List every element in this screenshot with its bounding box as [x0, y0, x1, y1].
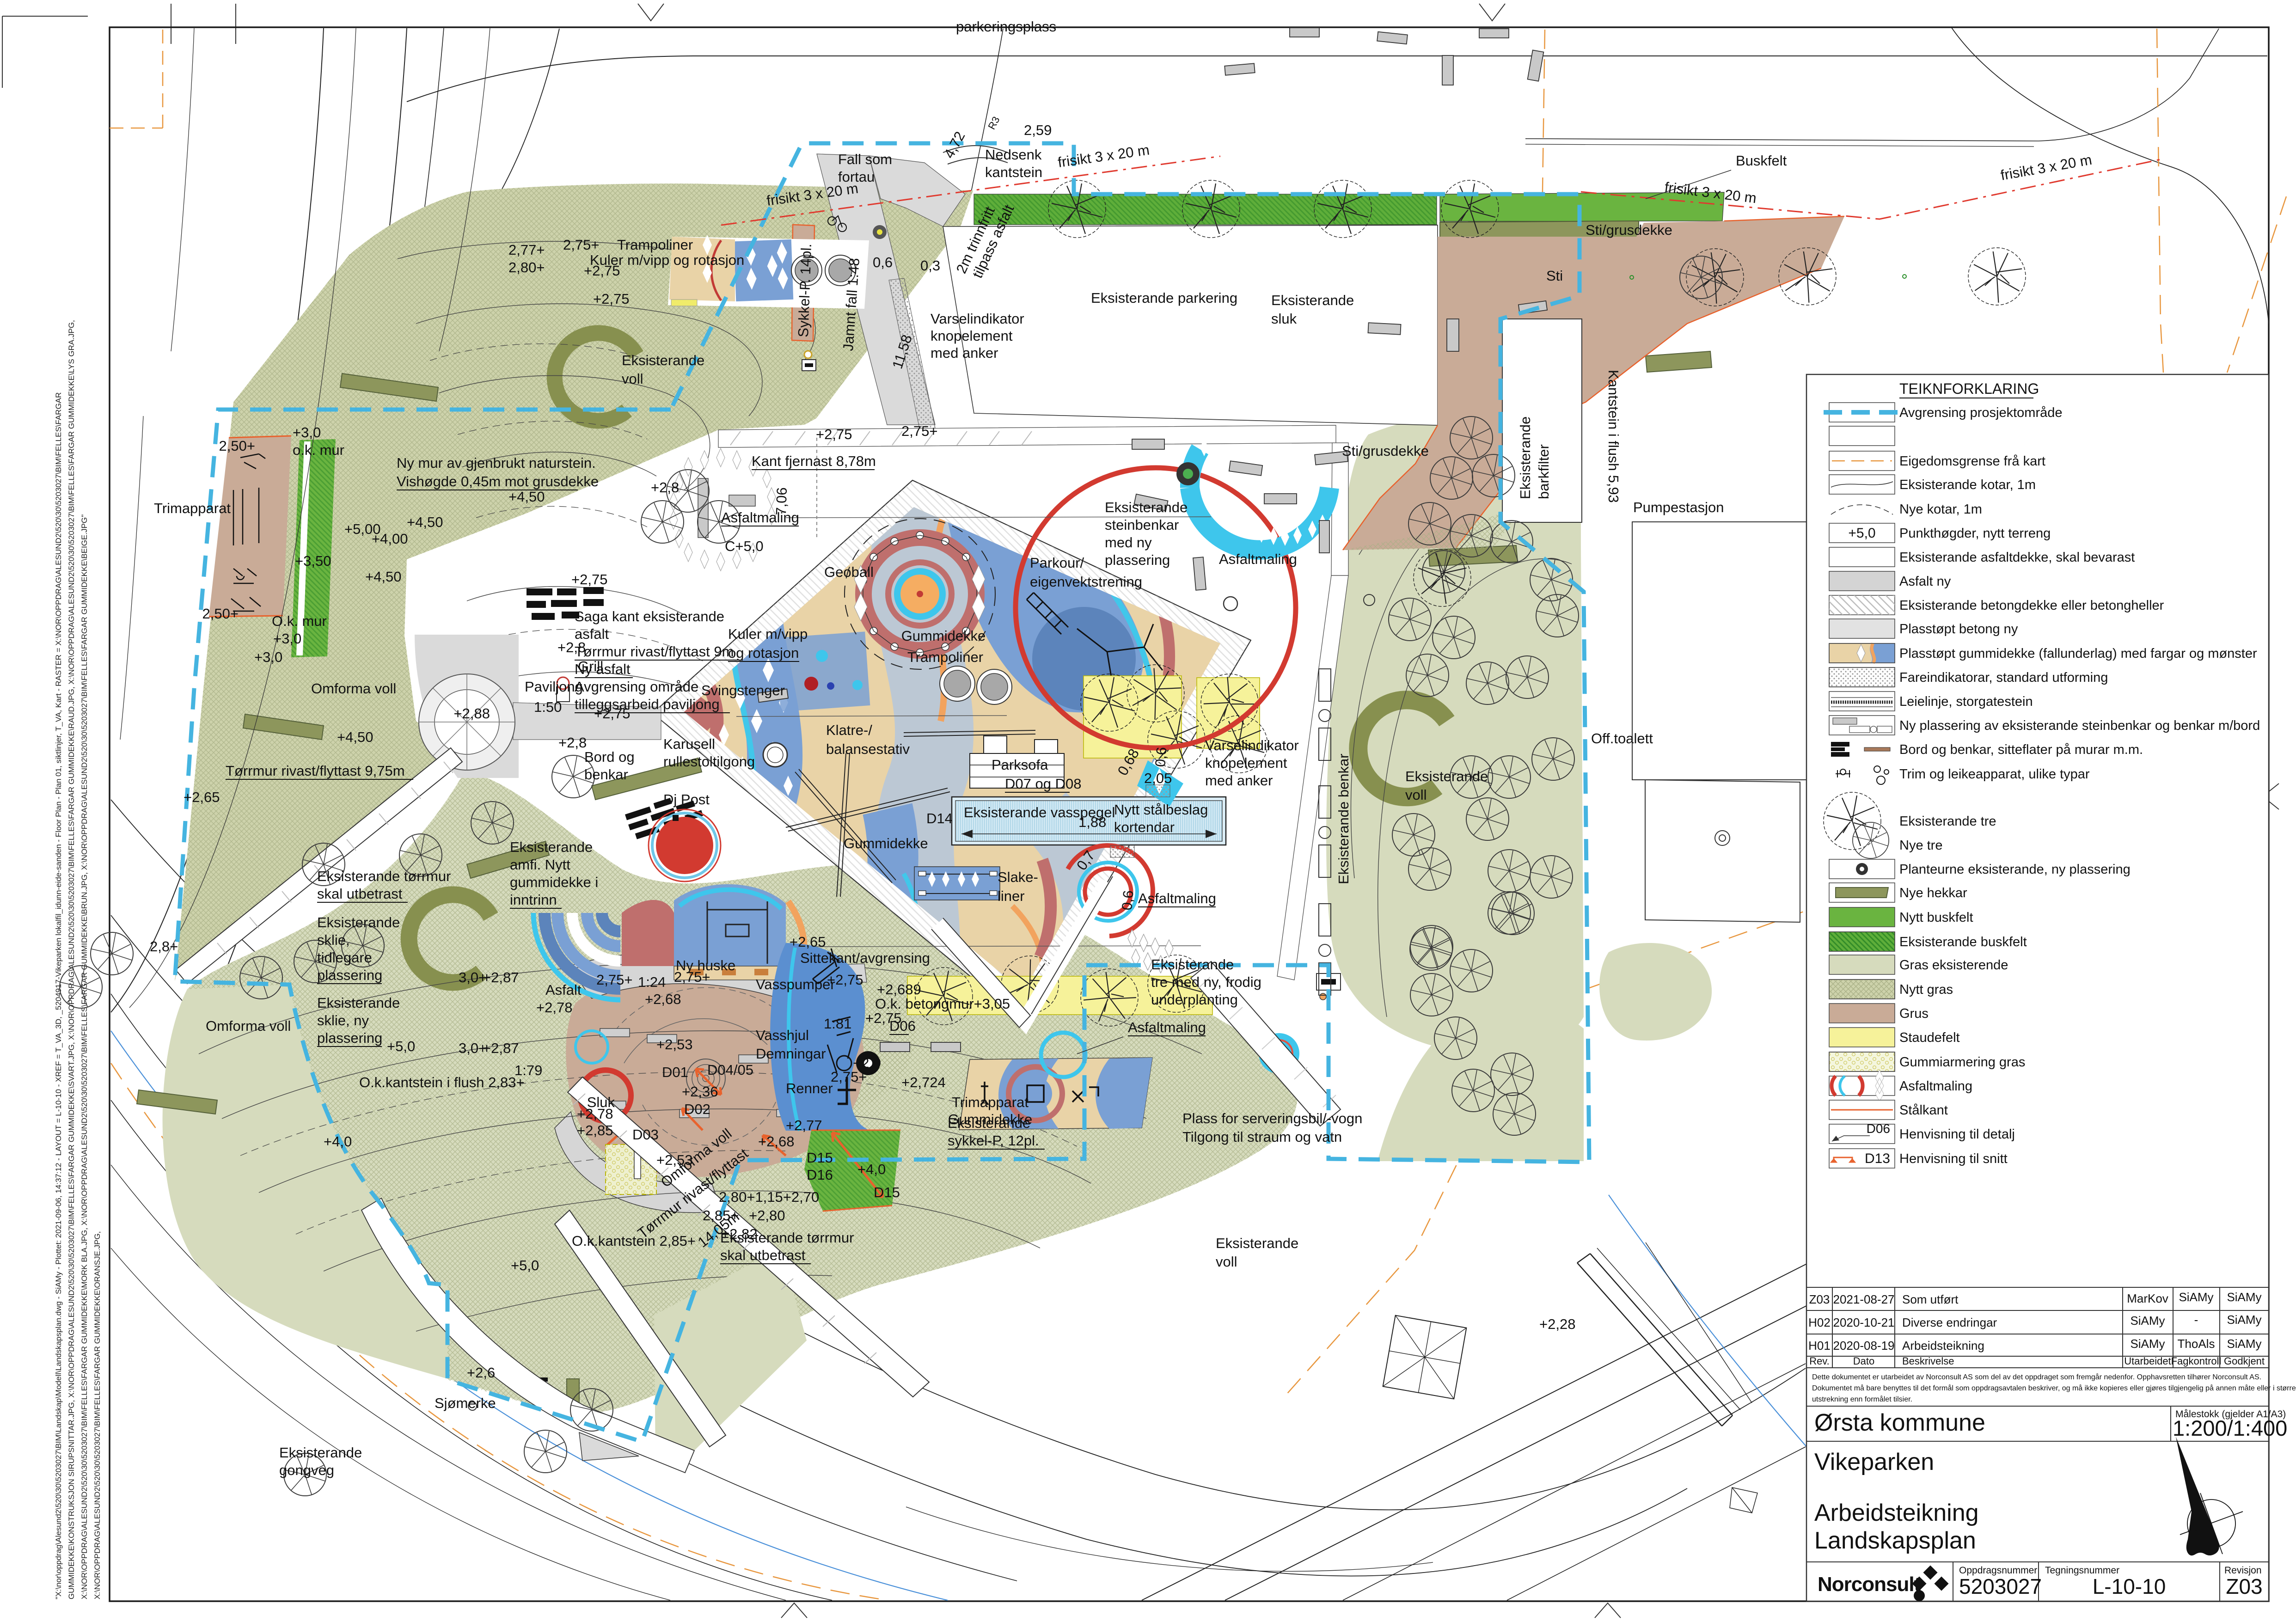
- svg-text:2,75+: 2,75+: [831, 1069, 867, 1085]
- svg-text:Plass for serveringsbil/-vogn: Plass for serveringsbil/-vogn: [1182, 1110, 1362, 1126]
- svg-text:Eksisterande benkar: Eksisterande benkar: [1335, 753, 1352, 884]
- svg-text:D14: D14: [926, 810, 953, 826]
- svg-text:Omforma voll: Omforma voll: [206, 1018, 291, 1034]
- svg-text:Asfaltmaling: Asfaltmaling: [1219, 551, 1297, 567]
- svg-text:Buskfelt: Buskfelt: [1736, 153, 1787, 169]
- svg-text:+2,724: +2,724: [901, 1074, 946, 1090]
- svg-text:+2,68: +2,68: [758, 1133, 794, 1150]
- svg-text:Demningar: Demningar: [756, 1046, 826, 1062]
- svg-text:1:79: 1:79: [514, 1062, 542, 1078]
- svg-text:SiAMy: SiAMy: [2130, 1337, 2165, 1351]
- svg-text:Slake-: Slake-: [998, 869, 1038, 885]
- svg-text:Trampoliner: Trampoliner: [617, 237, 693, 253]
- svg-text:+2,53: +2,53: [656, 1036, 692, 1053]
- svg-text:+2,75: +2,75: [584, 263, 620, 279]
- svg-text:sklie,: sklie,: [317, 932, 350, 948]
- svg-text:+5,0: +5,0: [511, 1257, 539, 1273]
- svg-text:Tilgong til straum og vatn: Tilgong til straum og vatn: [1182, 1129, 1342, 1145]
- svg-text:Eksisterande tre: Eksisterande tre: [1899, 814, 1996, 829]
- svg-text:Parkour/: Parkour/: [1030, 555, 1084, 571]
- svg-text:0,6: 0,6: [1152, 747, 1170, 768]
- svg-text:Plasstøpt betong ny: Plasstøpt betong ny: [1899, 622, 2018, 637]
- svg-text:inntrinn: inntrinn: [510, 892, 557, 908]
- svg-text:Punkthøgder, nytt terreng: Punkthøgder, nytt terreng: [1899, 526, 2051, 541]
- svg-text:Fall som: Fall som: [838, 151, 892, 167]
- svg-text:knopelement: knopelement: [931, 328, 1013, 344]
- svg-text:voll: voll: [1405, 787, 1427, 803]
- svg-text:kantstein: kantstein: [985, 164, 1042, 180]
- svg-text:Eksisterande: Eksisterande: [1517, 416, 1533, 499]
- svg-text:Leielinje, storgatestein: Leielinje, storgatestein: [1899, 694, 2033, 709]
- svg-text:knopelement: knopelement: [1205, 755, 1287, 771]
- svg-text:Vasspumper: Vasspumper: [756, 976, 835, 992]
- svg-text:Nye tre: Nye tre: [1899, 838, 1942, 853]
- svg-text:TEIKNFORKLARING: TEIKNFORKLARING: [1899, 380, 2039, 397]
- svg-text:balansestativ: balansestativ: [826, 741, 910, 757]
- svg-text:+2,689: +2,689: [877, 981, 921, 998]
- svg-text:D01: D01: [662, 1064, 688, 1080]
- svg-text:+2,80: +2,80: [749, 1207, 785, 1224]
- svg-text:underplanting: underplanting: [1151, 992, 1238, 1008]
- svg-text:+3,50: +3,50: [295, 553, 331, 569]
- svg-text:gummidekke i: gummidekke i: [510, 874, 598, 890]
- svg-text:H02: H02: [1808, 1316, 1831, 1329]
- svg-text:+2,78: +2,78: [536, 999, 572, 1016]
- svg-text:Trim og leikeapparat, ulike ty: Trim og leikeapparat, ulike typar: [1899, 767, 2090, 782]
- svg-text:Godkjent: Godkjent: [2224, 1355, 2265, 1367]
- svg-text:SiAMy: SiAMy: [2130, 1314, 2165, 1328]
- svg-text:Omforma voll: Omforma voll: [311, 680, 396, 697]
- svg-text:barkfilter: barkfilter: [1536, 444, 1552, 499]
- svg-text:med anker: med anker: [931, 345, 998, 361]
- svg-text:utstrekning enn formålet tilsi: utstrekning enn formålet tilsier.: [1812, 1395, 1912, 1403]
- svg-text:Grill: Grill: [578, 658, 603, 674]
- svg-text:2,77+: 2,77+: [508, 242, 545, 258]
- svg-text:Z03: Z03: [2226, 1574, 2262, 1598]
- svg-text:Sluk: Sluk: [587, 1094, 615, 1110]
- svg-text:D04/05: D04/05: [707, 1062, 753, 1078]
- svg-text:Ny mur av gjenbrukt naturstein: Ny mur av gjenbrukt naturstein.: [397, 455, 596, 471]
- svg-text:ThoAls: ThoAls: [2178, 1337, 2215, 1351]
- svg-text:Ørsta kommune: Ørsta kommune: [1814, 1409, 1985, 1436]
- svg-text:+2,75: +2,75: [571, 571, 607, 588]
- svg-text:Eksisterande: Eksisterande: [317, 914, 400, 930]
- svg-text:Sti/grusdekke: Sti/grusdekke: [1342, 443, 1429, 459]
- svg-text:Som utført: Som utført: [1902, 1292, 1959, 1306]
- svg-text:Eksisterande: Eksisterande: [622, 352, 704, 368]
- svg-text:2,75+: 2,75+: [563, 237, 599, 253]
- svg-text:D15: D15: [807, 1150, 833, 1166]
- svg-text:liner: liner: [998, 888, 1025, 904]
- svg-text:Staudefelt: Staudefelt: [1899, 1030, 1960, 1045]
- svg-text:2,75+: 2,75+: [674, 969, 710, 985]
- svg-text:Trampoliner: Trampoliner: [907, 649, 983, 665]
- svg-text:Sti/grusdekke: Sti/grusdekke: [1586, 222, 1672, 238]
- svg-text:Paviljong: Paviljong: [525, 679, 583, 695]
- svg-text:Eksisterande: Eksisterande: [510, 839, 593, 855]
- svg-text:+4,0: +4,0: [857, 1161, 886, 1177]
- svg-text:parkeringsplass: parkeringsplass: [956, 18, 1056, 35]
- svg-text:Varselindikator: Varselindikator: [1205, 737, 1299, 753]
- svg-text:benkar: benkar: [584, 766, 628, 783]
- svg-text:Nytt gras: Nytt gras: [1899, 982, 1953, 997]
- svg-text:2,80+1,15+2,70: 2,80+1,15+2,70: [719, 1189, 819, 1205]
- svg-text:Planteurne eksisterande, ny pl: Planteurne eksisterande, ny plassering: [1899, 862, 2131, 877]
- svg-text:+2,28: +2,28: [1539, 1316, 1575, 1332]
- svg-text:Eksisterande: Eksisterande: [1405, 768, 1488, 784]
- svg-text:Parksofa: Parksofa: [992, 757, 1048, 773]
- svg-text:SiAMy: SiAMy: [2227, 1313, 2261, 1327]
- svg-text:rullestoltilgong: rullestoltilgong: [663, 753, 755, 770]
- svg-text:2021-08-27: 2021-08-27: [1833, 1292, 1895, 1306]
- svg-text:GUMMIDEKKE\KONSTRUKSJON SIRUPS: GUMMIDEKKE\KONSTRUKSJON SIRUPSNITTAR.JPG…: [67, 320, 76, 1599]
- svg-text:2,50+: 2,50+: [219, 438, 255, 454]
- svg-text:+3,0: +3,0: [293, 424, 321, 441]
- svg-text:Kant fjernast 8,78m: Kant fjernast 8,78m: [752, 453, 876, 469]
- svg-text:Gummiarmering gras: Gummiarmering gras: [1899, 1055, 2025, 1070]
- svg-text:Bord og: Bord og: [584, 749, 635, 765]
- svg-text:+5,00: +5,00: [344, 521, 380, 537]
- svg-text:-: -: [2194, 1313, 2198, 1327]
- svg-text:+2,6: +2,6: [467, 1365, 495, 1381]
- svg-text:Landskapsplan: Landskapsplan: [1814, 1527, 1976, 1554]
- svg-text:+5,0: +5,0: [1848, 526, 1875, 541]
- svg-text:+2,87: +2,87: [483, 969, 519, 985]
- svg-text:Eksisterande: Eksisterande: [1271, 292, 1354, 308]
- svg-text:Nytt buskfelt: Nytt buskfelt: [1899, 910, 1973, 925]
- svg-text:+2,75: +2,75: [816, 426, 852, 442]
- svg-text:voll: voll: [622, 371, 643, 387]
- svg-text:+4,50: +4,50: [508, 489, 545, 505]
- svg-text:Gummidekke: Gummidekke: [948, 1111, 1033, 1127]
- svg-text:Pumpestasjon: Pumpestasjon: [1633, 499, 1724, 515]
- svg-text:2,80+: 2,80+: [508, 259, 545, 275]
- svg-text:Gummidekke: Gummidekke: [901, 628, 986, 644]
- svg-text:+2,87: +2,87: [483, 1040, 519, 1056]
- svg-text:steinbenkar: steinbenkar: [1105, 517, 1179, 533]
- svg-text:+2,65: +2,65: [790, 934, 826, 950]
- svg-text:MarKov: MarKov: [2127, 1291, 2168, 1305]
- svg-text:Eksisterande tørrmur: Eksisterande tørrmur: [317, 868, 451, 884]
- svg-text:Eksisterande: Eksisterande: [1216, 1235, 1298, 1251]
- svg-text:0,6: 0,6: [1119, 890, 1137, 911]
- svg-text:+2,8: +2,8: [558, 734, 587, 751]
- svg-text:voll: voll: [1216, 1254, 1237, 1270]
- svg-text:Sittekant/avgrensing: Sittekant/avgrensing: [800, 950, 930, 966]
- svg-text:+3,0: +3,0: [273, 630, 301, 647]
- svg-text:Eksisterande parkering: Eksisterande parkering: [1091, 290, 1237, 306]
- svg-text:+2,65: +2,65: [184, 789, 220, 805]
- svg-text:2,75+: 2,75+: [596, 972, 632, 988]
- svg-text:med anker: med anker: [1205, 772, 1273, 789]
- svg-text:Asfalt ny: Asfalt ny: [1899, 574, 1951, 589]
- svg-text:kortendar: kortendar: [1114, 819, 1175, 835]
- svg-text:+2,68: +2,68: [645, 991, 681, 1007]
- svg-text:Geoball: Geoball: [824, 564, 874, 580]
- svg-text:plassering: plassering: [317, 1030, 382, 1046]
- svg-text:+2,75: +2,75: [594, 705, 630, 722]
- svg-text:Eksisterande: Eksisterande: [279, 1444, 362, 1461]
- svg-text:+2,9: +2,9: [853, 1055, 881, 1071]
- svg-text:sluk: sluk: [1271, 311, 1297, 327]
- svg-text:Asfaltmaling: Asfaltmaling: [721, 509, 799, 526]
- svg-text:D07 og D08: D07 og D08: [1005, 776, 1081, 792]
- svg-text:Bord og benkar, sitteflater på: Bord og benkar, sitteflater på murar m.m…: [1899, 742, 2143, 757]
- svg-text:2020-10-21: 2020-10-21: [1833, 1316, 1895, 1329]
- svg-text:Nye hekkar: Nye hekkar: [1899, 886, 1967, 900]
- svg-text:Dette dokumentet er utarbeidet: Dette dokumentet er utarbeidet av Norcon…: [1812, 1373, 2261, 1381]
- svg-text:plassering: plassering: [1105, 552, 1170, 568]
- svg-text:Trimapparat: Trimapparat: [154, 500, 231, 516]
- svg-text:Asfaltmaling: Asfaltmaling: [1899, 1079, 1972, 1094]
- svg-text:Z03: Z03: [1809, 1292, 1830, 1306]
- svg-text:5203027: 5203027: [1959, 1574, 2042, 1598]
- svg-text:Henvisning til snitt: Henvisning til snitt: [1899, 1151, 2008, 1166]
- svg-text:+3,0: +3,0: [254, 649, 282, 665]
- svg-text:Kuler m/vipp: Kuler m/vipp: [728, 626, 808, 642]
- svg-text:O.k. mur: O.k. mur: [272, 613, 327, 629]
- svg-text:skal utbetrast: skal utbetrast: [720, 1247, 806, 1263]
- svg-text:1,88: 1,88: [1078, 814, 1106, 830]
- svg-text:Avgrensing område: Avgrensing område: [575, 679, 698, 695]
- svg-text:Trimapparat: Trimapparat: [952, 1094, 1029, 1110]
- svg-text:sklie, ny: sklie, ny: [317, 1012, 369, 1028]
- svg-text:X:\NOR\OPPDRAG\ALESUND2\520\30: X:\NOR\OPPDRAG\ALESUND2\520\30\5203027\B…: [93, 1231, 102, 1599]
- svg-text:D02: D02: [684, 1101, 710, 1117]
- svg-text:Eigedomsgrense frå kart: Eigedomsgrense frå kart: [1899, 454, 2045, 469]
- svg-text:+2,75: +2,75: [827, 972, 863, 988]
- svg-text:gongveg: gongveg: [279, 1462, 334, 1478]
- svg-text:Dj Post: Dj Post: [663, 791, 710, 808]
- svg-text:D13: D13: [1865, 1151, 1890, 1166]
- svg-text:Varselindikator: Varselindikator: [931, 311, 1024, 327]
- svg-text:Tørrmur rivast/flyttast 9,75m: Tørrmur rivast/flyttast 9,75m: [226, 763, 405, 779]
- svg-text:2,75+: 2,75+: [901, 423, 937, 439]
- svg-text:D06: D06: [889, 1018, 916, 1034]
- svg-text:D03: D03: [632, 1126, 659, 1143]
- svg-text:+2,36: +2,36: [682, 1083, 718, 1100]
- svg-text:+5,0: +5,0: [387, 1038, 415, 1054]
- svg-text:Vishøgde 0,45m mot grusdekke: Vishøgde 0,45m mot grusdekke: [397, 473, 599, 490]
- svg-text:SiAMy: SiAMy: [2179, 1290, 2213, 1304]
- svg-text:1:24: 1:24: [638, 974, 666, 990]
- svg-text:Stålkant: Stålkant: [1899, 1103, 1948, 1118]
- svg-text:Eksisterande: Eksisterande: [1151, 956, 1234, 973]
- svg-text:plassering: plassering: [317, 967, 382, 983]
- svg-text:0,6: 0,6: [873, 254, 893, 270]
- svg-text:Kantstein i flush 5,93: Kantstein i flush 5,93: [1605, 370, 1622, 503]
- svg-text:Rev.: Rev.: [1809, 1355, 1830, 1367]
- svg-text:0,3: 0,3: [920, 257, 940, 274]
- svg-text:Asfaltmaling: Asfaltmaling: [1128, 1019, 1206, 1035]
- svg-text:Saga kant eksisterande: Saga kant eksisterande: [575, 608, 724, 624]
- svg-text:Eksisterande buskfelt: Eksisterande buskfelt: [1899, 935, 2027, 949]
- svg-text:Beskrivelse: Beskrivelse: [1902, 1355, 1954, 1367]
- svg-text:Eksisterande: Eksisterande: [1105, 499, 1188, 515]
- svg-text:2,05: 2,05: [1144, 770, 1172, 786]
- svg-text:+4,50: +4,50: [337, 729, 373, 745]
- svg-text:Ny plassering av eksisterande: Ny plassering av eksisterande steinbenka…: [1899, 718, 2260, 733]
- svg-text:2020-08-19: 2020-08-19: [1833, 1339, 1895, 1353]
- svg-text:Plasstøpt gummidekke (fallunde: Plasstøpt gummidekke (fallunderlag) med …: [1899, 646, 2257, 661]
- svg-text:Dokumentet må bare benyttes ti: Dokumentet må bare benyttes til det form…: [1812, 1384, 2296, 1392]
- svg-text:D16: D16: [807, 1167, 833, 1183]
- svg-text:Gras eksisterende: Gras eksisterende: [1899, 958, 2008, 973]
- svg-text:+2,53: +2,53: [656, 1152, 692, 1168]
- svg-text:SiAMy: SiAMy: [2227, 1290, 2261, 1304]
- svg-text:+2,88: +2,88: [454, 705, 490, 722]
- svg-text:Eksisterande: Eksisterande: [317, 995, 400, 1011]
- svg-text:+4,50: +4,50: [407, 514, 443, 530]
- svg-text:Tørrmur rivast/flyttast 9m: Tørrmur rivast/flyttast 9m: [575, 643, 734, 660]
- svg-text:2,85+: 2,85+: [703, 1207, 739, 1224]
- svg-text:+2,82: +2,82: [721, 1226, 757, 1242]
- svg-text:O.k.kantstein 2,85+: O.k.kantstein 2,85+: [572, 1233, 696, 1249]
- svg-text:Vikeparken: Vikeparken: [1814, 1449, 1934, 1475]
- svg-text:med ny: med ny: [1105, 534, 1152, 551]
- svg-text:+2,77: +2,77: [786, 1117, 822, 1133]
- svg-text:Svingstenger: Svingstenger: [701, 682, 785, 698]
- svg-text:Diverse endringar: Diverse endringar: [1902, 1316, 1997, 1329]
- svg-text:eigenvektstrening: eigenvektstrening: [1030, 574, 1142, 590]
- svg-text:1:50: 1:50: [534, 699, 562, 715]
- svg-text:skal utbetrast: skal utbetrast: [317, 886, 403, 902]
- svg-text:Nye kotar, 1m: Nye kotar, 1m: [1899, 502, 1982, 517]
- svg-text:+2,85: +2,85: [577, 1122, 613, 1138]
- svg-text:Asfalt: Asfalt: [545, 982, 582, 998]
- svg-text:Norconsult: Norconsult: [1818, 1573, 1921, 1596]
- svg-text:Asfaltmaling: Asfaltmaling: [1138, 890, 1216, 906]
- svg-text:+4,50: +4,50: [365, 569, 401, 585]
- svg-text:Off.toalett: Off.toalett: [1591, 730, 1653, 747]
- svg-text:H01: H01: [1808, 1339, 1831, 1353]
- svg-text:+2,8: +2,8: [651, 479, 679, 496]
- svg-text:Utarbeidet: Utarbeidet: [2124, 1355, 2171, 1367]
- svg-text:1:200/1:400: 1:200/1:400: [2173, 1416, 2287, 1440]
- svg-text:Sykkel-P. 14pl.: Sykkel-P. 14pl.: [795, 243, 814, 337]
- svg-text:amfi. Nytt: amfi. Nytt: [510, 857, 570, 873]
- svg-text:O.k. betongmur+3,05: O.k. betongmur+3,05: [875, 996, 1010, 1012]
- svg-text:Karusell: Karusell: [663, 736, 715, 752]
- svg-text:Eksisterande asfaltdekke, skal: Eksisterande asfaltdekke, skal bevarast: [1899, 550, 2135, 565]
- svg-text:Nedsenk: Nedsenk: [985, 147, 1042, 163]
- svg-text:Grus: Grus: [1899, 1006, 1929, 1021]
- svg-text:Gummidekke: Gummidekke: [844, 835, 928, 851]
- svg-text:Avgrensing prosjektområde: Avgrensing prosjektområde: [1899, 405, 2063, 420]
- svg-text:tidlegare: tidlegare: [317, 949, 372, 966]
- svg-text:Henvisning til detalj: Henvisning til detalj: [1899, 1127, 2015, 1142]
- svg-text:Vasshjul: Vasshjul: [756, 1027, 809, 1043]
- svg-text:D15: D15: [874, 1184, 900, 1200]
- svg-text:tre med ny, frodig: tre med ny, frodig: [1151, 974, 1261, 990]
- svg-text:C+5,0: C+5,0: [725, 538, 764, 554]
- svg-text:2,8+: 2,8+: [150, 938, 178, 955]
- svg-text:Arbeidsteikning: Arbeidsteikning: [1902, 1339, 1984, 1353]
- svg-text:2,59: 2,59: [1024, 122, 1052, 138]
- svg-text:+4,0: +4,0: [324, 1133, 352, 1150]
- svg-text:SiAMy: SiAMy: [2227, 1337, 2261, 1351]
- svg-text:og rotasjon: og rotasjon: [728, 645, 799, 661]
- svg-text:+2,8: +2,8: [557, 639, 586, 655]
- svg-text:Sti: Sti: [1546, 268, 1563, 284]
- svg-text:sykkel-P, 12pl.: sykkel-P, 12pl.: [948, 1132, 1039, 1149]
- svg-text:1:81: 1:81: [824, 1016, 851, 1032]
- svg-text:+2,75: +2,75: [593, 291, 629, 307]
- svg-text:D06: D06: [1867, 1121, 1890, 1136]
- svg-text:Klatre-/: Klatre-/: [826, 722, 872, 738]
- svg-text:Dato: Dato: [1853, 1355, 1874, 1367]
- svg-text:L-10-10: L-10-10: [2093, 1574, 2166, 1598]
- svg-text:o.k. mur: o.k. mur: [293, 442, 344, 458]
- svg-text:2,50+: 2,50+: [202, 606, 239, 622]
- svg-text:Eksisterande kotar, 1m: Eksisterande kotar, 1m: [1899, 477, 2036, 492]
- svg-text:Nytt stålbeslag: Nytt stålbeslag: [1114, 802, 1208, 818]
- svg-text:Renner: Renner: [786, 1080, 833, 1096]
- svg-text:Sjømerke: Sjømerke: [435, 1395, 496, 1411]
- svg-text:O.k.kantstein i flush 2,83+: O.k.kantstein i flush 2,83+: [359, 1074, 525, 1090]
- svg-text:Fareindikatorar, standard utfo: Fareindikatorar, standard utforming: [1899, 670, 2108, 685]
- svg-text:Eksisterande betongdekke eller: Eksisterande betongdekke eller betonghel…: [1899, 598, 2164, 613]
- svg-text:X:\NOR\OPPDRAG\ALESUND2\520\30: X:\NOR\OPPDRAG\ALESUND2\520\30\5203027\B…: [80, 514, 89, 1599]
- svg-text:Fagkontroll: Fagkontroll: [2171, 1355, 2222, 1367]
- svg-text:Arbeidsteikning: Arbeidsteikning: [1814, 1500, 1979, 1526]
